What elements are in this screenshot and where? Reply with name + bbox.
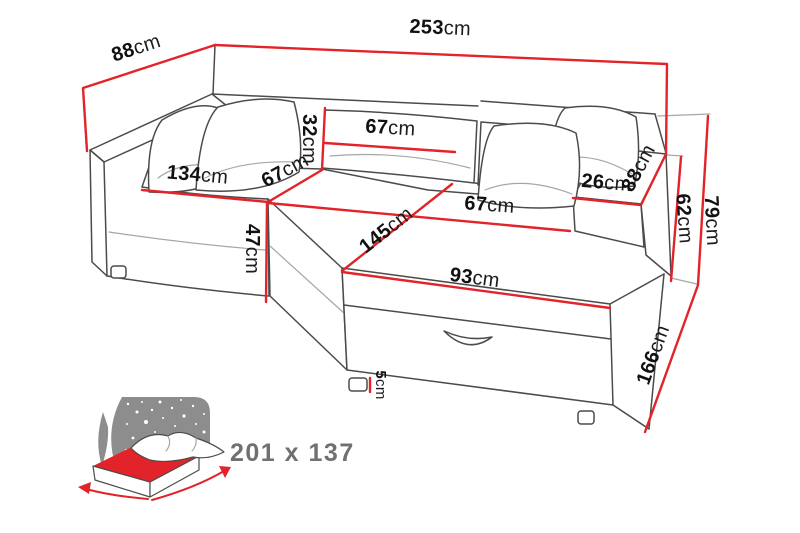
dim-label-seat-height: 47cm — [241, 224, 263, 274]
moon-wedge — [98, 412, 108, 466]
sofa-leg-chaise-right — [578, 411, 594, 424]
dim-label-total-height: 79cm — [700, 195, 725, 246]
diagram-canvas: 88cm 253cm 32cm 67cm 134cm 67cm 47cm 145… — [0, 0, 800, 533]
sofa-bed-function-icon: 201 x 137 — [78, 397, 355, 500]
dim-label-armrest-height: 62cm — [671, 193, 696, 245]
tick-armrest-height — [667, 155, 683, 156]
dim-line-left-seat-width — [142, 190, 268, 202]
dim-label-total-width: 253cm — [409, 16, 471, 41]
tick-chaise-length — [671, 278, 697, 284]
left-armrest-front — [90, 150, 107, 276]
sleeping-area-label: 201 x 137 — [230, 439, 355, 467]
dim-label-backrest-width: 67cm — [365, 116, 416, 141]
dim-label-right-seat-width: 67cm — [464, 192, 516, 217]
sofa-back-right-edge — [655, 114, 666, 153]
chaise-right-top-edge — [610, 274, 664, 304]
sofa-line-drawing — [90, 45, 710, 429]
dim-label-leg-height: 5cm — [372, 370, 389, 399]
dim-label-side-depth: 88cm — [109, 30, 163, 66]
wall-corner-edge — [213, 45, 215, 94]
dimension-diagram: 88cm 253cm 32cm 67cm 134cm 67cm 47cm 145… — [0, 0, 800, 533]
sofa-leg-chaise-left — [349, 378, 367, 391]
base-bottom-edge — [107, 276, 268, 296]
dim-label-chaise-total-length: 166cm — [633, 322, 675, 387]
dim-line-seat-height — [266, 203, 267, 302]
sofa-leg-left — [111, 266, 126, 278]
chaise-left-face — [268, 199, 347, 370]
